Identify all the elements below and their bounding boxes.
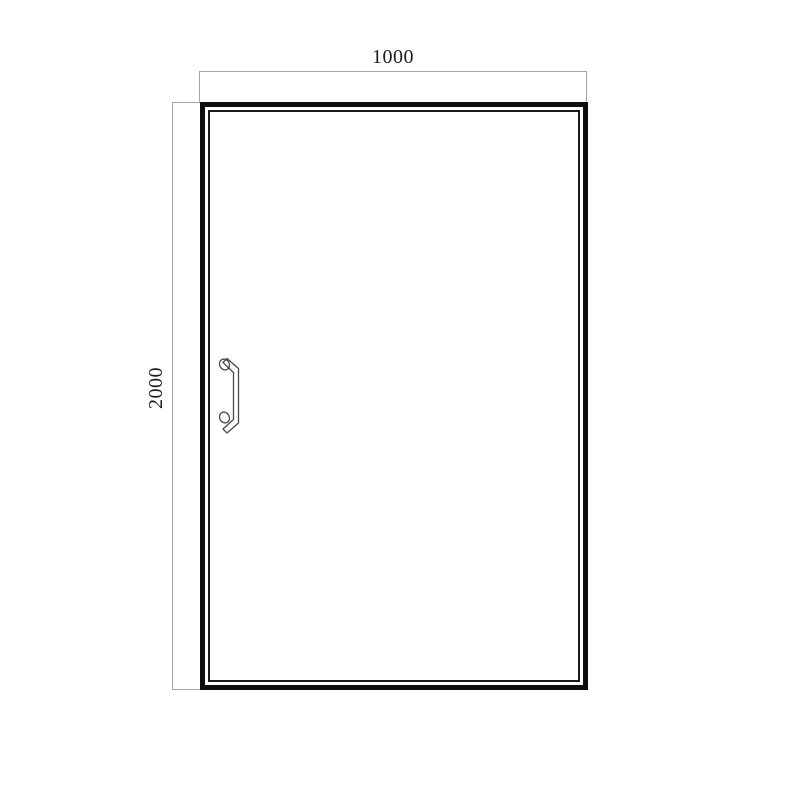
door-frame <box>200 102 588 690</box>
width-extension-line-right <box>586 71 587 103</box>
width-dimension-line <box>199 71 587 72</box>
door-pull-handle-icon <box>216 353 242 435</box>
height-dimension-line <box>172 102 173 690</box>
width-dimension-label: 1000 <box>199 45 587 69</box>
width-extension-line-left <box>199 71 200 103</box>
height-extension-line-top <box>172 102 201 103</box>
door-drawing-canvas: 1000 2000 <box>0 0 800 800</box>
height-extension-line-bottom <box>172 689 201 690</box>
height-dimension-label: 2000 <box>144 348 168 428</box>
door-panel <box>208 110 580 682</box>
